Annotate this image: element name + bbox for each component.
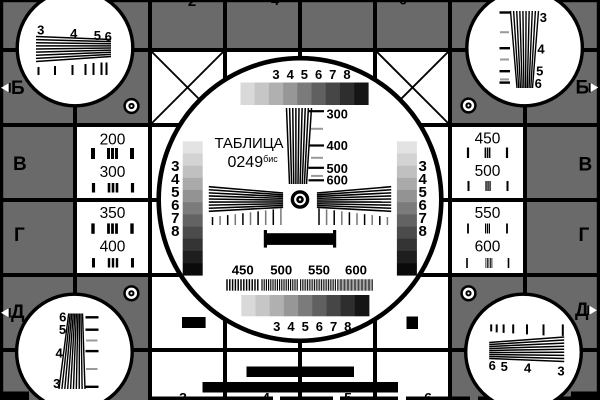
svg-text:6: 6 — [535, 76, 542, 91]
svg-text:6: 6 — [316, 319, 323, 334]
svg-text:5: 5 — [302, 319, 309, 334]
svg-text:400: 400 — [100, 239, 126, 256]
svg-text:7: 7 — [329, 67, 336, 82]
svg-text:ТАБЛИЦА: ТАБЛИЦА — [214, 135, 283, 152]
svg-text:Г: Г — [579, 225, 590, 246]
svg-text:7: 7 — [330, 319, 337, 334]
svg-text:450: 450 — [475, 130, 501, 147]
svg-text:Б: Б — [576, 78, 590, 99]
svg-text:4: 4 — [287, 67, 295, 82]
svg-text:550: 550 — [308, 263, 330, 278]
svg-text:300: 300 — [327, 106, 348, 121]
svg-text:8: 8 — [171, 223, 179, 240]
svg-text:4: 4 — [524, 361, 532, 376]
svg-text:200: 200 — [100, 131, 126, 148]
svg-text:5: 5 — [344, 390, 352, 400]
svg-text:4: 4 — [55, 346, 63, 361]
svg-text:В: В — [13, 154, 27, 175]
svg-text:2: 2 — [188, 0, 196, 10]
svg-text:600: 600 — [327, 172, 348, 187]
svg-text:5: 5 — [301, 67, 308, 82]
svg-text:5: 5 — [501, 359, 508, 374]
svg-text:3: 3 — [273, 319, 280, 334]
svg-text:350: 350 — [100, 205, 126, 222]
svg-text:4: 4 — [537, 42, 545, 57]
svg-text:3: 3 — [272, 67, 279, 82]
svg-text:550: 550 — [475, 205, 501, 222]
svg-text:8: 8 — [344, 319, 351, 334]
svg-text:4: 4 — [271, 0, 280, 9]
svg-text:6: 6 — [315, 67, 322, 82]
svg-text:5: 5 — [59, 322, 66, 337]
svg-text:6: 6 — [489, 358, 496, 373]
svg-text:500: 500 — [270, 263, 292, 278]
svg-text:Б: Б — [11, 78, 25, 99]
svg-text:Д: Д — [575, 300, 589, 321]
svg-text:600: 600 — [345, 263, 367, 278]
svg-text:600: 600 — [475, 239, 501, 256]
svg-text:6: 6 — [424, 390, 432, 400]
svg-text:Г: Г — [14, 225, 25, 246]
svg-text:450: 450 — [232, 263, 254, 278]
svg-text:6: 6 — [399, 0, 407, 7]
svg-text:8: 8 — [343, 67, 350, 82]
svg-text:3: 3 — [179, 390, 187, 400]
svg-text:3: 3 — [53, 376, 60, 391]
svg-text:4: 4 — [262, 390, 270, 400]
svg-text:3: 3 — [37, 22, 44, 37]
svg-text:3: 3 — [540, 10, 547, 25]
svg-text:400: 400 — [327, 138, 348, 153]
svg-text:8: 8 — [419, 223, 427, 240]
svg-text:4: 4 — [287, 319, 295, 334]
svg-text:500: 500 — [475, 163, 501, 180]
svg-text:300: 300 — [100, 164, 126, 181]
svg-text:Д: Д — [11, 302, 25, 323]
svg-text:3: 3 — [557, 363, 564, 378]
svg-text:В: В — [579, 155, 593, 176]
